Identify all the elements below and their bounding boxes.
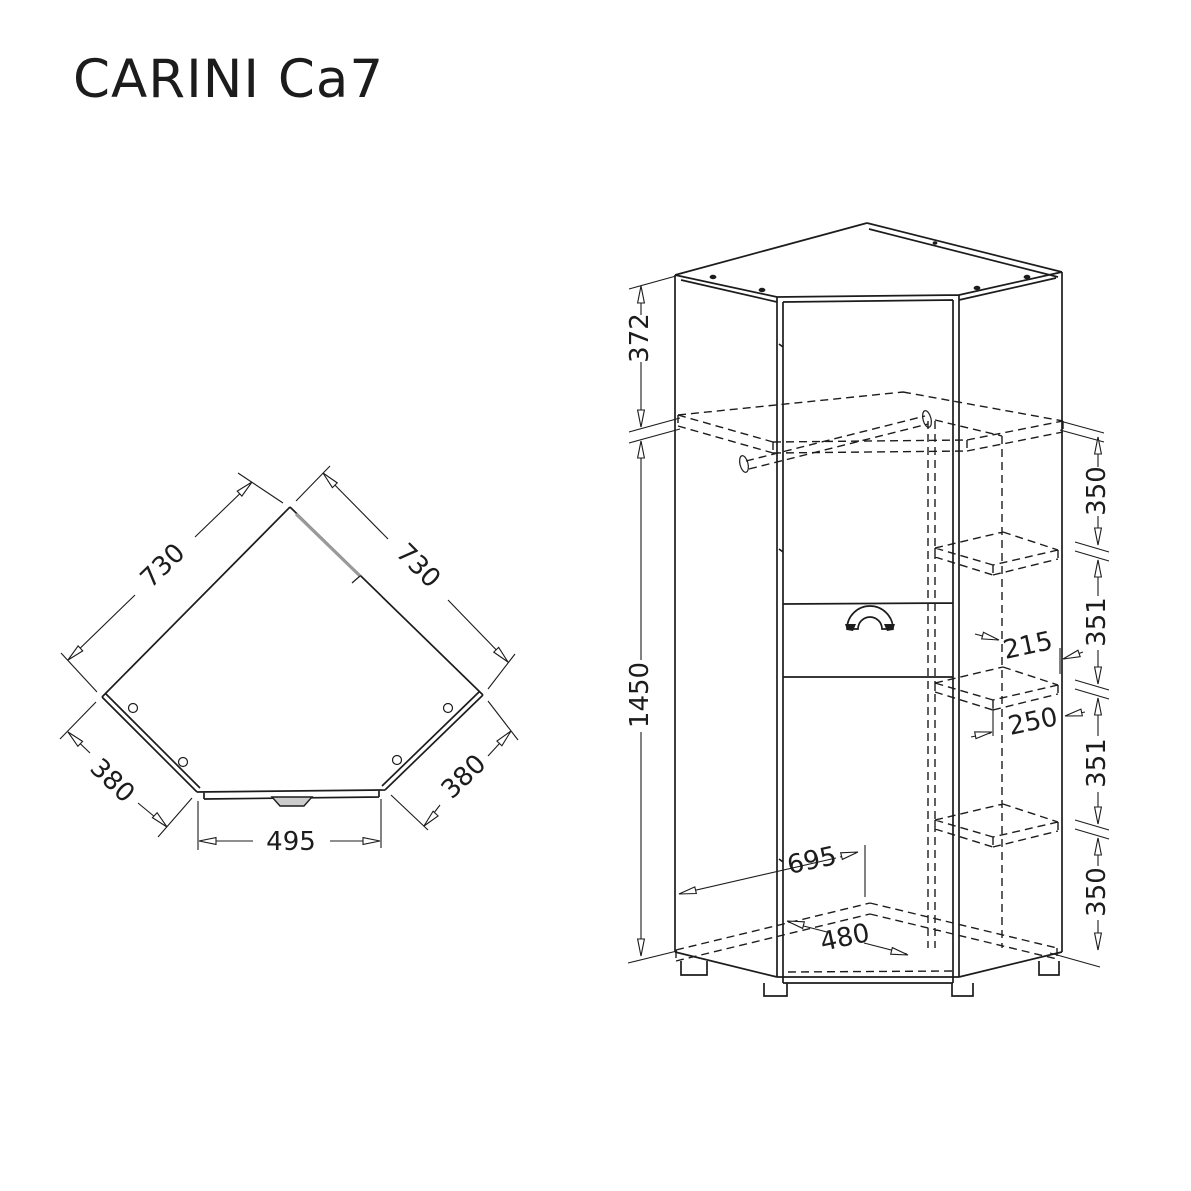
front-view: 372 1450 350 351 351 350 215 250 695 480 xyxy=(625,223,1112,996)
top-view-handle xyxy=(272,797,312,806)
dim-body-height: 1450 xyxy=(625,662,655,728)
dimension-arrowhead xyxy=(638,441,645,458)
screw-hole xyxy=(974,286,981,290)
dim-shelf-depth: 215 xyxy=(1001,626,1056,666)
dimension-arrowhead xyxy=(237,480,254,497)
dimension-arrowhead xyxy=(786,918,804,929)
dimension-arrowhead xyxy=(1095,933,1102,950)
furniture-dimension-drawing: CARINI Ca7 730 730 380 380 495 xyxy=(0,0,1191,1191)
front-view-dimension-lines xyxy=(628,276,1109,967)
dim-top-wing-left: 380 xyxy=(84,753,141,809)
dim-top-side-left: 730 xyxy=(135,538,192,594)
front-view-screw-holes xyxy=(710,241,1031,292)
dimension-arrowhead xyxy=(638,286,645,303)
dim-shelf-spacing-4: 350 xyxy=(1082,867,1112,917)
dimension-arrowhead xyxy=(1095,807,1102,824)
dimension-arrowhead xyxy=(678,887,696,897)
front-view-carcass xyxy=(675,223,1062,983)
dimension-arrowheads xyxy=(66,286,1102,958)
dimension-arrowhead xyxy=(638,410,645,427)
hole xyxy=(129,704,138,713)
drawing-title: CARINI Ca7 xyxy=(73,49,384,110)
top-view-fitting-holes xyxy=(129,704,453,767)
dimension-arrowhead xyxy=(638,939,645,956)
dimension-arrowhead xyxy=(1095,560,1102,577)
dimension-arrowhead xyxy=(497,729,514,746)
dimension-arrowhead xyxy=(152,813,169,830)
technical-drawing-page: CARINI Ca7 730 730 380 380 495 xyxy=(0,0,1191,1191)
dimension-arrowhead xyxy=(321,471,338,488)
dimension-arrowhead xyxy=(1095,698,1102,715)
screw-hole xyxy=(710,275,717,279)
dimension-arrowhead xyxy=(841,849,859,860)
dim-shelf-width: 250 xyxy=(1006,702,1061,742)
dimension-arrowhead xyxy=(66,646,83,663)
dimension-arrowhead xyxy=(1095,528,1102,545)
rod-cap xyxy=(921,410,933,428)
dimension-arrowhead xyxy=(363,838,380,845)
top-view-door-edge-tick xyxy=(352,576,360,583)
screw-hole xyxy=(1024,275,1031,279)
top-view: 730 730 380 380 495 xyxy=(60,466,518,857)
dim-top-wing-right: 380 xyxy=(436,749,493,805)
dim-top-front-width: 495 xyxy=(266,827,316,857)
dim-shelf-spacing-3: 351 xyxy=(1082,738,1112,788)
dimension-arrowhead xyxy=(982,632,1000,643)
dimension-arrowhead xyxy=(66,730,83,747)
front-view-hidden-lines xyxy=(676,392,1063,972)
dimension-arrowhead xyxy=(891,948,909,959)
dim-top-side-right: 730 xyxy=(390,538,446,594)
screw-hole xyxy=(759,288,766,292)
dimension-arrowhead xyxy=(1064,709,1082,719)
dimension-arrowhead xyxy=(494,647,511,664)
drawer-handle-caps xyxy=(845,624,895,631)
dim-shelf-spacing-2: 351 xyxy=(1082,597,1112,647)
hole xyxy=(444,704,453,713)
dim-shelf-spacing-1: 350 xyxy=(1082,466,1112,516)
dimension-arrowhead xyxy=(422,811,439,828)
dimension-arrowhead xyxy=(199,838,216,845)
top-view-door-edge xyxy=(296,514,360,576)
dimension-arrowhead xyxy=(1095,667,1102,684)
dim-bottom-depth: 695 xyxy=(785,841,840,881)
dimension-arrowhead xyxy=(1095,838,1102,855)
dim-top-section-height: 372 xyxy=(625,313,655,363)
dim-bottom-width: 480 xyxy=(818,918,873,958)
hole xyxy=(393,756,402,765)
rod-cap xyxy=(738,455,750,473)
hole xyxy=(179,758,188,767)
screw-hole xyxy=(933,241,938,245)
dimension-arrowhead xyxy=(1062,650,1080,662)
